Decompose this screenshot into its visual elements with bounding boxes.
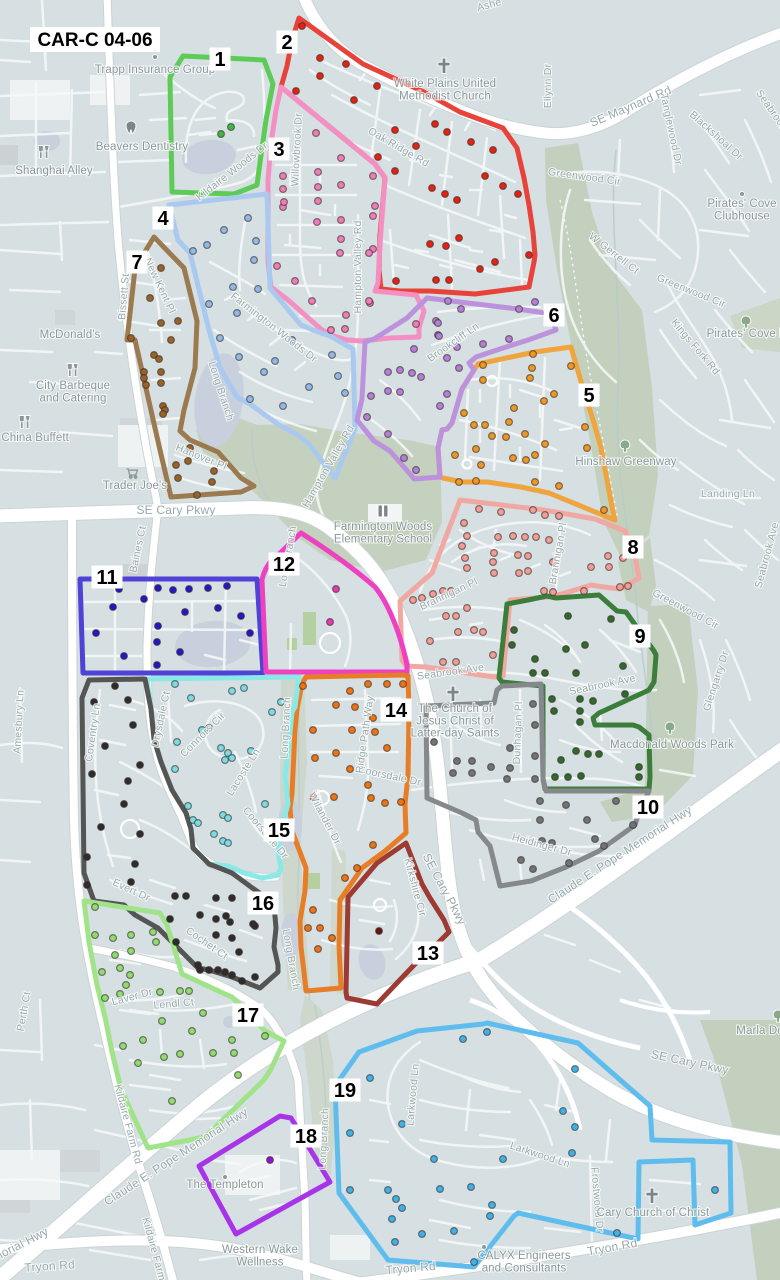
svg-text:18: 18	[295, 1126, 317, 1148]
svg-text:Beavers Dentistry: Beavers Dentistry	[96, 141, 189, 153]
svg-text:6: 6	[548, 305, 559, 327]
svg-text:Macdonald Woods Park: Macdonald Woods Park	[610, 739, 734, 751]
svg-text:Latter-day Saints: Latter-day Saints	[411, 728, 500, 740]
svg-text:Ellynn Dr: Ellynn Dr	[542, 64, 554, 109]
svg-text:The Templeton: The Templeton	[186, 1179, 263, 1191]
svg-text:Hampton Valley Rd: Hampton Valley Rd	[352, 220, 364, 313]
svg-text:15: 15	[268, 820, 290, 842]
svg-text:Pirates' Cove: Pirates' Cove	[707, 198, 776, 210]
svg-text:Landing Ln: Landing Ln	[701, 488, 755, 500]
svg-text:Cary Church of Christ: Cary Church of Christ	[597, 1207, 710, 1219]
svg-text:1: 1	[214, 49, 225, 71]
svg-text:Dunhagan Pl: Dunhagan Pl	[511, 701, 525, 764]
svg-text:12: 12	[273, 554, 295, 576]
svg-text:9: 9	[634, 626, 645, 648]
svg-text:Trapp Insurance Group: Trapp Insurance Group	[95, 64, 216, 76]
svg-text:CAR-C 04-06: CAR-C 04-06	[37, 30, 152, 51]
svg-text:City Barbeque: City Barbeque	[36, 380, 110, 392]
svg-text:Farmington Woods: Farmington Woods	[334, 521, 433, 533]
svg-text:19: 19	[334, 1080, 356, 1102]
svg-text:CALYX Engineers: CALYX Engineers	[477, 1250, 570, 1262]
svg-text:14: 14	[385, 700, 408, 722]
svg-text:7: 7	[131, 252, 142, 274]
svg-text:White Plains United: White Plains United	[394, 78, 496, 90]
svg-text:Pirates' Cove Par: Pirates' Cove Par	[707, 328, 780, 340]
svg-text:8: 8	[627, 537, 638, 559]
svg-text:2: 2	[281, 32, 292, 54]
svg-text:Shanghai Alley: Shanghai Alley	[15, 165, 93, 177]
svg-text:13: 13	[417, 943, 439, 965]
svg-text:10: 10	[637, 797, 659, 819]
svg-text:5: 5	[583, 385, 594, 407]
svg-text:Trader Joe's: Trader Joe's	[103, 480, 167, 492]
svg-text:SE Cary Pkwy: SE Cary Pkwy	[136, 503, 215, 517]
svg-text:Elementary School: Elementary School	[334, 533, 432, 545]
svg-text:Jesus Christ of: Jesus Christ of	[416, 715, 494, 727]
svg-text:The Church of: The Church of	[418, 703, 493, 715]
svg-text:Western Wake: Western Wake	[222, 1244, 298, 1256]
svg-text:chi China Buffett: chi China Buffett	[0, 432, 70, 444]
svg-text:Hinshaw Greenway: Hinshaw Greenway	[575, 456, 676, 468]
svg-text:Marla Do: Marla Do	[736, 1025, 780, 1037]
svg-text:Methodist Church: Methodist Church	[399, 90, 491, 102]
svg-text:3: 3	[273, 139, 284, 161]
svg-text:and Consultants: and Consultants	[482, 1262, 567, 1274]
svg-text:11: 11	[96, 567, 117, 589]
svg-text:and Catering: and Catering	[39, 392, 106, 404]
svg-text:16: 16	[252, 893, 274, 915]
svg-text:McDonald's: McDonald's	[40, 329, 101, 341]
svg-text:4: 4	[157, 208, 169, 230]
svg-text:Wellness: Wellness	[236, 1256, 283, 1268]
svg-text:17: 17	[237, 1005, 259, 1027]
svg-text:Clubhouse: Clubhouse	[714, 210, 770, 222]
